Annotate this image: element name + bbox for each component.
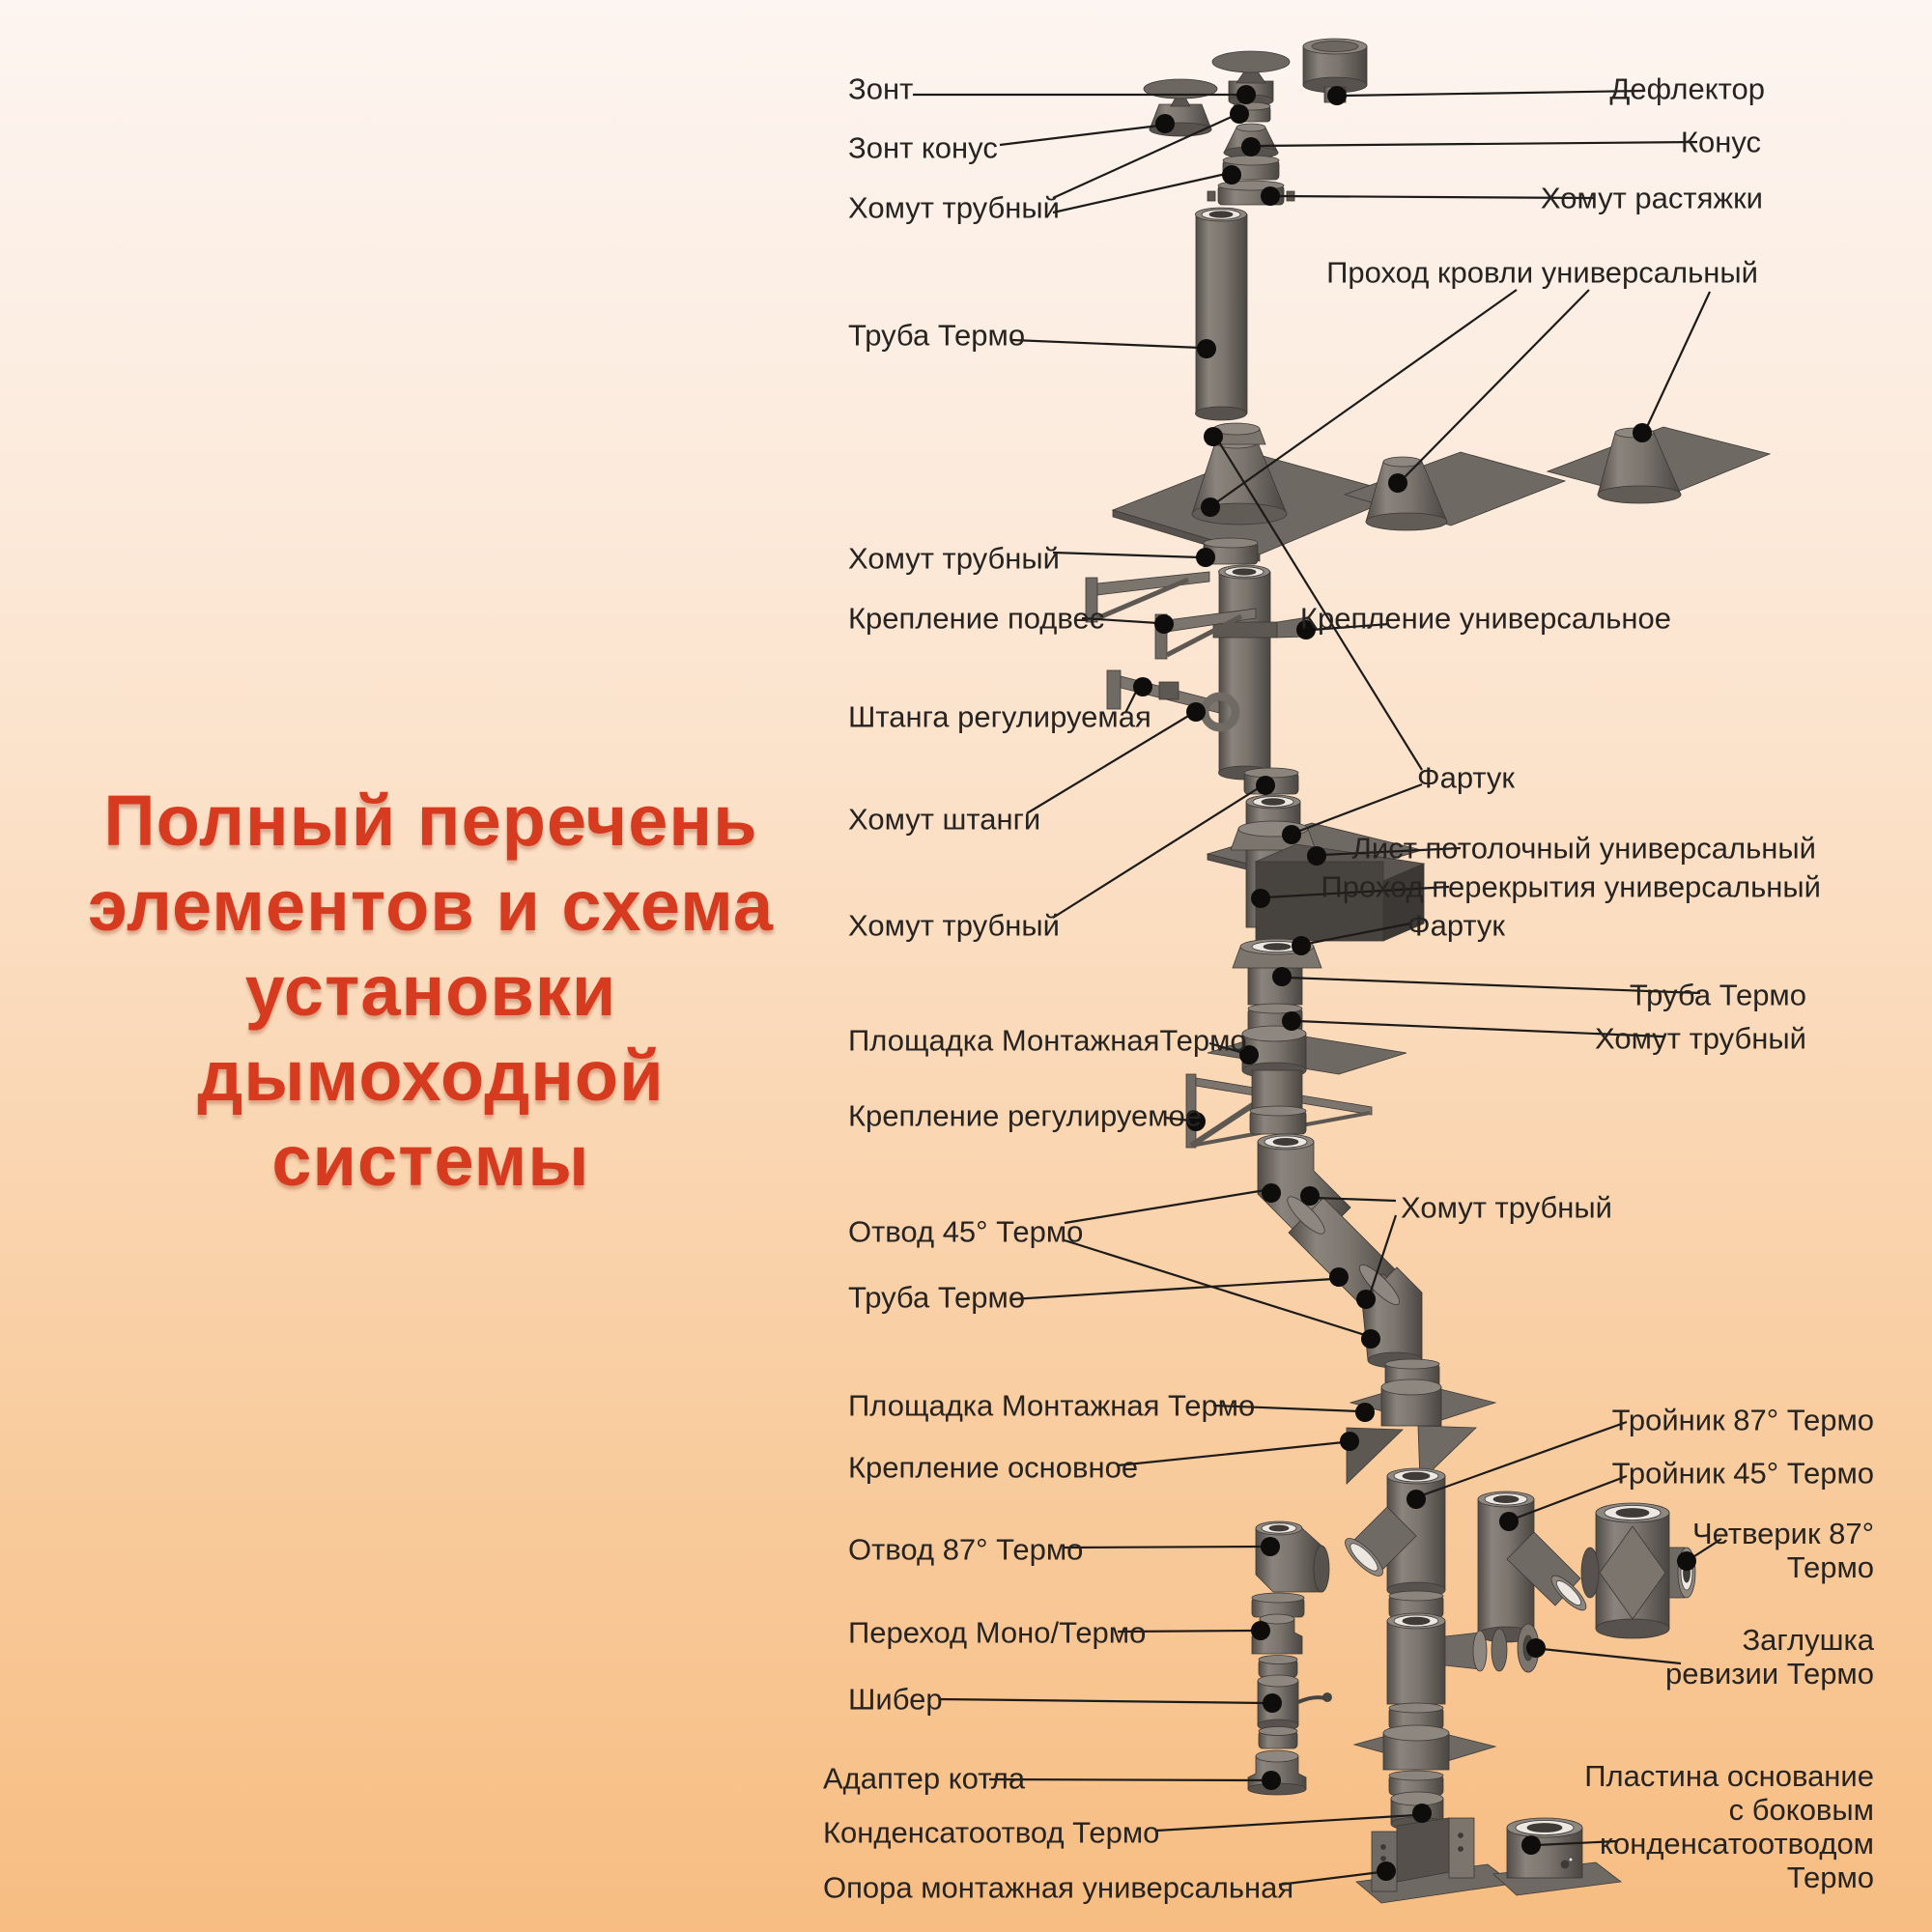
- part-label: Хомут трубный: [848, 909, 1060, 943]
- part-branch-clamp-2: [1259, 1656, 1297, 1678]
- part-label: Пластина основание с боковым конденсатоо…: [1584, 1759, 1874, 1894]
- part-label: Отвод 87° Термо: [848, 1533, 1083, 1567]
- part-roof-passage-3: [1548, 427, 1770, 503]
- title-line: установки: [66, 949, 796, 1034]
- page-title: Полный переченьэлементов и схемаустановк…: [66, 779, 796, 1204]
- title-line: элементов и схема: [66, 864, 796, 949]
- part-branch-clamp-3: [1259, 1727, 1297, 1749]
- part-label: Труба Термо: [848, 319, 1025, 353]
- part-branch-clamp-1: [1252, 1593, 1304, 1617]
- part-mount-platform-2: [1350, 1379, 1495, 1426]
- title-line: системы: [66, 1119, 796, 1204]
- part-label: Труба Термо: [1630, 979, 1806, 1012]
- part-label: Переход Моно/Термо: [848, 1616, 1146, 1650]
- part-clamp-main-3: [1389, 1771, 1443, 1795]
- part-label: Фартук: [1407, 909, 1505, 943]
- title-line: дымоходной: [66, 1034, 796, 1119]
- part-tee-87: [1340, 1468, 1445, 1598]
- part-label: Крепление регулируемое: [848, 1099, 1202, 1133]
- part-label: Хомут трубный: [848, 542, 1060, 576]
- part-label: Опора монтажная универсальная: [823, 1871, 1293, 1905]
- part-label: Конденсатоотвод Термо: [823, 1816, 1159, 1850]
- part-roof-passage-2: [1345, 452, 1565, 530]
- part-label: Фартук: [1417, 761, 1515, 795]
- part-label: Дефлектор: [1609, 72, 1765, 106]
- poster: Полный переченьэлементов и схемаустановк…: [0, 0, 1932, 1932]
- part-label: Лист потолочный универсальный: [1352, 832, 1816, 866]
- part-cross-87: [1581, 1503, 1695, 1638]
- title-line: Полный перечень: [66, 779, 796, 864]
- part-guy-clamp: [1207, 181, 1294, 205]
- part-thermo-pipe-2: [1213, 565, 1308, 780]
- part-label: Шибер: [848, 1683, 943, 1717]
- part-label: Штанга регулируемая: [848, 700, 1151, 734]
- part-label: Площадка Монтажная Термо: [848, 1389, 1255, 1423]
- part-label: Отвод 45° Термо: [848, 1215, 1083, 1249]
- part-label: Заглушка ревизии Термо: [1665, 1623, 1874, 1690]
- part-universal-support: [1356, 1818, 1513, 1903]
- part-label: Хомут растяжки: [1541, 182, 1763, 215]
- part-label: Хомут трубный: [1401, 1191, 1612, 1225]
- part-pipe-clamp-5: [1250, 1070, 1306, 1134]
- part-label: Крепление подвес: [848, 602, 1104, 636]
- part-label: Тройник 45° Термо: [1612, 1457, 1874, 1491]
- part-label: Зонт: [848, 72, 913, 106]
- part-label: Труба Термо: [848, 1281, 1025, 1315]
- part-label: Проход перекрытия универсальный: [1321, 870, 1821, 904]
- part-mount-platform-3: [1354, 1725, 1495, 1770]
- part-label: Тройник 87° Термо: [1612, 1404, 1874, 1437]
- part-label: Хомут трубный: [1595, 1022, 1806, 1056]
- part-label: Зонт конус: [848, 131, 998, 165]
- part-tee-45: [1478, 1492, 1591, 1642]
- part-label: Четверик 87° Термо: [1692, 1517, 1874, 1584]
- part-label: Конус: [1681, 126, 1761, 159]
- part-label: Хомут трубный: [848, 191, 1060, 225]
- part-elbow-45-2: [1355, 1261, 1422, 1368]
- part-label: Адаптер котла: [823, 1762, 1025, 1796]
- part-elbow-87: [1256, 1521, 1329, 1592]
- part-label: Крепление основное: [848, 1451, 1138, 1485]
- part-label: Проход кровли универсальный: [1326, 256, 1758, 290]
- part-label: Хомут штанги: [848, 803, 1040, 837]
- part-thermo-pipe-1: [1196, 208, 1248, 420]
- part-label: Крепление универсальное: [1300, 602, 1671, 636]
- part-label: Площадка МонтажнаяТермо: [848, 1024, 1247, 1058]
